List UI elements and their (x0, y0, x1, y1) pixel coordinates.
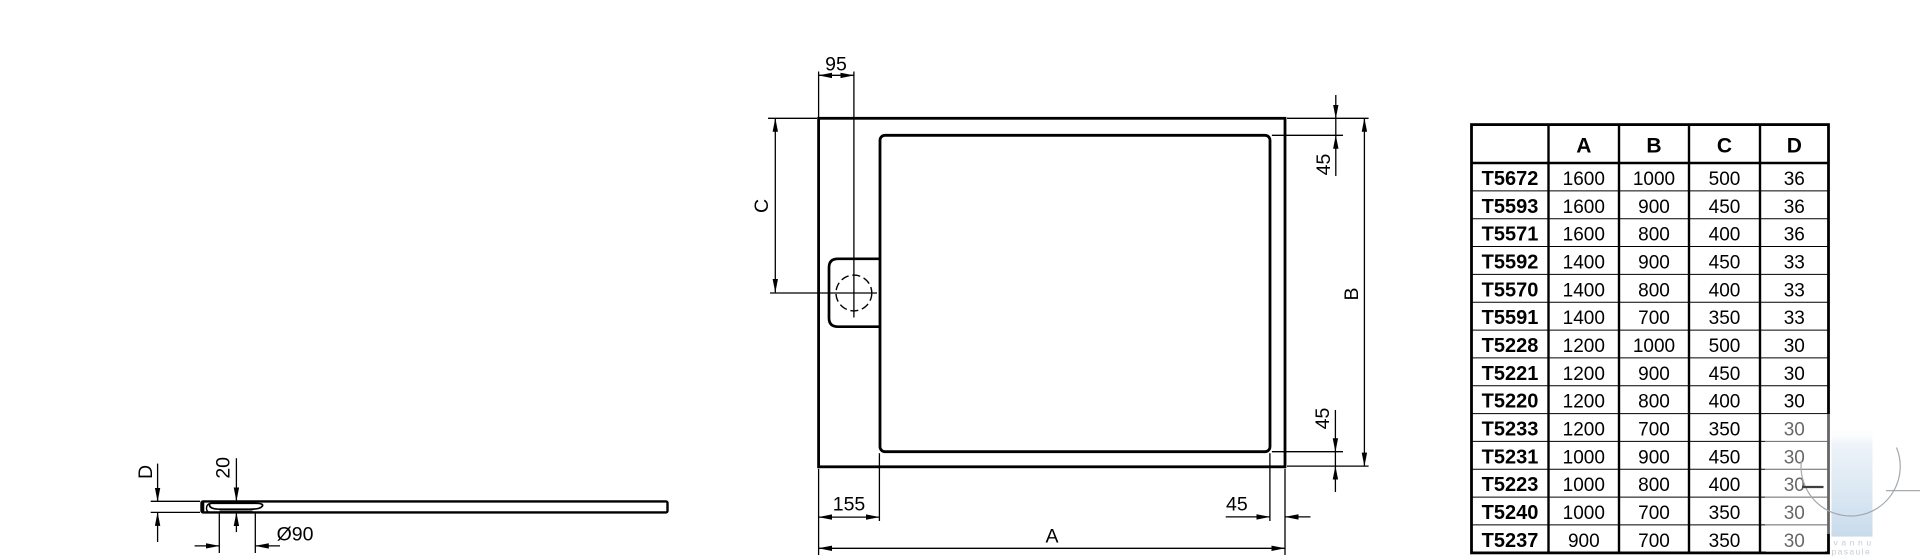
svg-text:20: 20 (213, 457, 235, 479)
svg-text:T5591: T5591 (1482, 307, 1539, 329)
svg-text:450: 450 (1709, 197, 1741, 218)
svg-text:1200: 1200 (1563, 336, 1605, 357)
svg-text:C: C (751, 199, 773, 213)
svg-text:45: 45 (1312, 408, 1334, 430)
svg-text:T5571: T5571 (1482, 224, 1539, 246)
svg-text:900: 900 (1638, 364, 1670, 385)
svg-text:30: 30 (1784, 392, 1805, 413)
svg-text:A: A (1045, 525, 1058, 547)
svg-text:400: 400 (1709, 475, 1741, 496)
svg-text:1600: 1600 (1563, 197, 1605, 218)
svg-text:1600: 1600 (1563, 225, 1605, 246)
svg-text:1600: 1600 (1563, 169, 1605, 190)
svg-text:T5592: T5592 (1482, 252, 1539, 274)
svg-text:T5672: T5672 (1482, 168, 1539, 190)
svg-text:C: C (1717, 134, 1732, 157)
svg-text:36: 36 (1784, 169, 1805, 190)
svg-text:350: 350 (1709, 308, 1741, 329)
svg-text:36: 36 (1784, 225, 1805, 246)
svg-text:36: 36 (1784, 197, 1805, 218)
svg-text:400: 400 (1709, 392, 1741, 413)
svg-text:1200: 1200 (1563, 420, 1605, 441)
svg-text:95: 95 (825, 54, 847, 76)
svg-text:900: 900 (1638, 447, 1670, 468)
svg-text:450: 450 (1709, 447, 1741, 468)
svg-text:30: 30 (1784, 336, 1805, 357)
svg-text:700: 700 (1638, 531, 1670, 552)
svg-text:1000: 1000 (1563, 475, 1605, 496)
svg-text:33: 33 (1784, 253, 1805, 274)
svg-text:1000: 1000 (1563, 447, 1605, 468)
svg-text:155: 155 (833, 493, 866, 515)
svg-text:D: D (135, 465, 157, 479)
svg-text:800: 800 (1638, 225, 1670, 246)
svg-text:33: 33 (1784, 280, 1805, 301)
svg-text:pasaule: pasaule (1832, 547, 1872, 557)
svg-text:D: D (1787, 134, 1802, 157)
svg-text:700: 700 (1638, 308, 1670, 329)
svg-text:1400: 1400 (1563, 253, 1605, 274)
svg-text:350: 350 (1709, 420, 1741, 441)
svg-text:1000: 1000 (1563, 503, 1605, 524)
svg-text:B: B (1646, 134, 1661, 157)
svg-text:900: 900 (1568, 531, 1600, 552)
svg-text:400: 400 (1709, 225, 1741, 246)
svg-text:T5233: T5233 (1482, 419, 1539, 441)
svg-text:400: 400 (1709, 280, 1741, 301)
svg-text:700: 700 (1638, 420, 1670, 441)
svg-text:T5228: T5228 (1482, 335, 1539, 357)
svg-text:T5220: T5220 (1482, 391, 1539, 413)
svg-text:T5240: T5240 (1482, 502, 1539, 524)
svg-text:45: 45 (1313, 154, 1335, 176)
svg-text:350: 350 (1709, 531, 1741, 552)
svg-text:33: 33 (1784, 308, 1805, 329)
svg-text:500: 500 (1709, 336, 1741, 357)
svg-text:900: 900 (1638, 197, 1670, 218)
svg-text:350: 350 (1709, 503, 1741, 524)
svg-text:450: 450 (1709, 253, 1741, 274)
svg-text:900: 900 (1638, 253, 1670, 274)
svg-text:700: 700 (1638, 503, 1670, 524)
svg-text:A: A (1576, 134, 1591, 157)
svg-text:30: 30 (1784, 364, 1805, 385)
svg-text:800: 800 (1638, 392, 1670, 413)
svg-text:T5231: T5231 (1482, 446, 1539, 468)
svg-text:B: B (1341, 287, 1363, 300)
svg-text:1200: 1200 (1563, 364, 1605, 385)
svg-text:T5593: T5593 (1482, 196, 1539, 218)
svg-text:T5221: T5221 (1482, 363, 1539, 385)
svg-text:Ø90: Ø90 (277, 523, 314, 545)
svg-text:1200: 1200 (1563, 392, 1605, 413)
svg-text:1400: 1400 (1563, 280, 1605, 301)
svg-text:45: 45 (1226, 493, 1248, 515)
svg-text:450: 450 (1709, 364, 1741, 385)
svg-text:1400: 1400 (1563, 308, 1605, 329)
svg-text:800: 800 (1638, 280, 1670, 301)
svg-text:1000: 1000 (1633, 336, 1675, 357)
svg-text:T5237: T5237 (1482, 530, 1539, 552)
svg-text:T5223: T5223 (1482, 474, 1539, 496)
svg-text:800: 800 (1638, 475, 1670, 496)
svg-text:T5570: T5570 (1482, 279, 1539, 301)
svg-text:1000: 1000 (1633, 169, 1675, 190)
svg-text:500: 500 (1709, 169, 1741, 190)
